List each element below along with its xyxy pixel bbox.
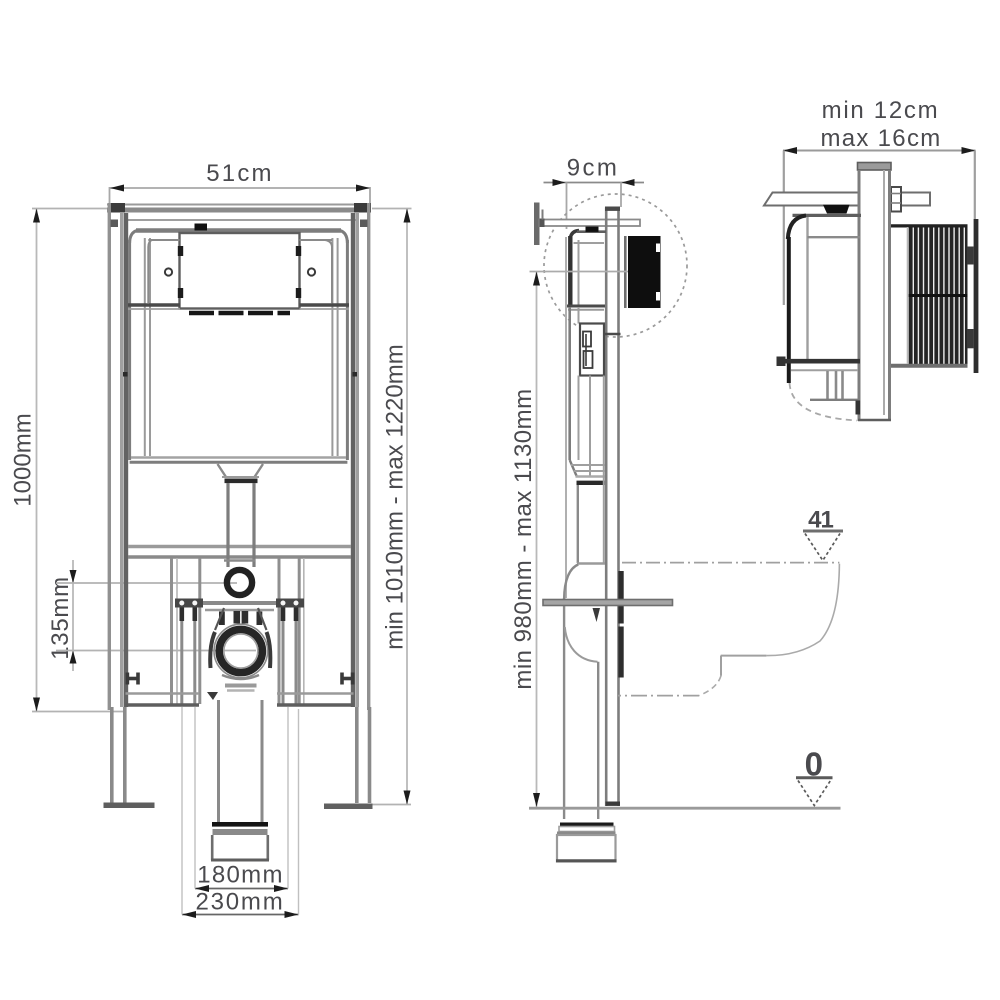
svg-text:41: 41	[808, 507, 833, 534]
svg-text:min 1010mm - max 1220mm: min 1010mm - max 1220mm	[382, 344, 409, 649]
svg-text:1000mm: 1000mm	[10, 413, 37, 506]
svg-text:min 980mm - max 1130mm: min 980mm - max 1130mm	[510, 388, 537, 689]
svg-text:135mm: 135mm	[47, 576, 74, 660]
svg-text:180mm: 180mm	[197, 862, 284, 889]
svg-text:230mm: 230mm	[195, 889, 284, 916]
svg-text:max 16cm: max 16cm	[820, 125, 941, 152]
svg-text:51cm: 51cm	[206, 160, 274, 187]
svg-text:min 12cm: min 12cm	[822, 97, 940, 124]
svg-text:9cm: 9cm	[567, 155, 620, 182]
